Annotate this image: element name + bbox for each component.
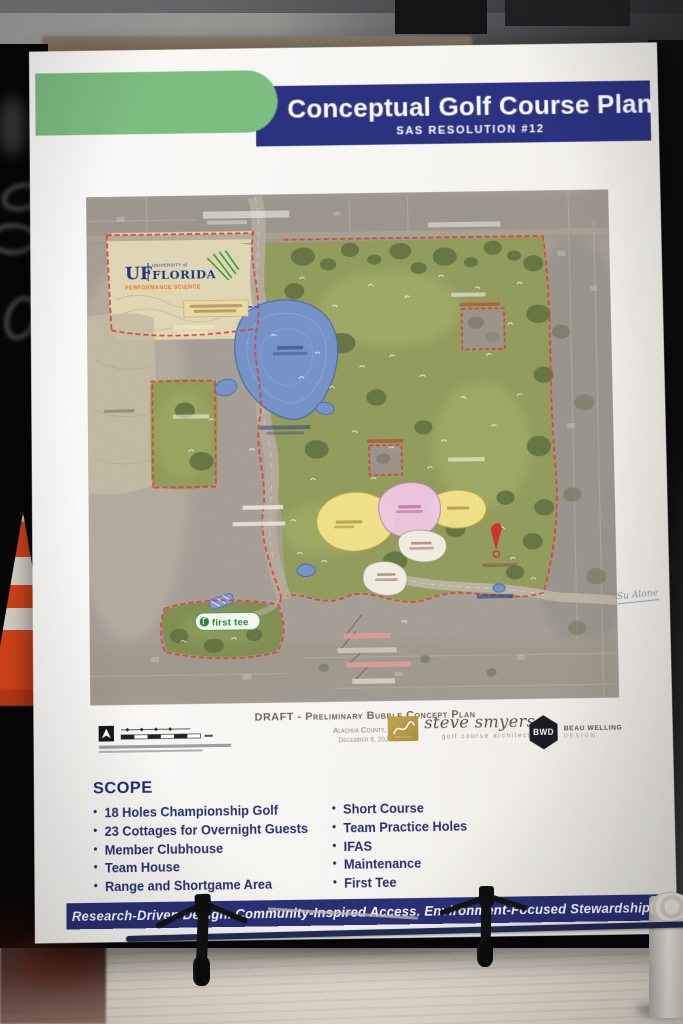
illegible-map-label (194, 309, 236, 313)
smyers-emblem-icon (388, 716, 419, 741)
blurred-highlight (0, 96, 26, 156)
scope-list-left: 18 Holes Championship Golf 23 Cottages f… (93, 801, 335, 897)
first-tee-logo: first tee (195, 612, 260, 630)
handwritten-note: Su Alone (616, 588, 658, 605)
poster-subtitle: SAS RESOLUTION #12 (396, 123, 545, 137)
paper-roll (649, 896, 683, 1018)
poster-title: Conceptual Golf Course Plan (287, 88, 653, 125)
beau-welling-logo: BWD BEAU WELLING DESIGN (528, 714, 623, 750)
ceiling-dark-panel (505, 0, 630, 26)
floor-red-reflection (16, 938, 98, 986)
north-arrow-icon (99, 726, 114, 742)
header-title-band: Conceptual Golf Course Plan SAS RESOLUTI… (255, 80, 651, 146)
smyers-name: steve smyers (424, 713, 535, 731)
easel-foot (477, 940, 493, 967)
fine-print-line (99, 744, 231, 749)
aerial-map-graphic: UF UNIVERSITY of FLORIDA PERFORMANCE SCI… (86, 190, 619, 706)
steve-smyers-logo: steve smyers golf course architects (388, 713, 536, 741)
scale-bar (119, 724, 217, 742)
bwd-hexagon-icon: BWD (528, 715, 559, 750)
short-course-bubble (378, 482, 441, 538)
paper-roll-top (649, 892, 683, 922)
ceiling-dark-panel (395, 0, 487, 34)
first-tee-label: first tee (212, 617, 249, 629)
map-legend-block (99, 724, 252, 753)
bwd-name-line2: DESIGN (564, 732, 623, 739)
footer-tagline: Research-Driven Design. Community-Inspir… (72, 900, 654, 925)
scope-heading: SCOPE (93, 779, 153, 799)
bwd-name-line1: BEAU WELLING (564, 724, 623, 732)
scope-item: Range and Shortgame Area (94, 875, 335, 897)
easel-leg (196, 910, 209, 960)
scope-list-right: Short Course Team Practice Holes IFAS Ma… (332, 798, 558, 894)
site-plan-map: UF UNIVERSITY of FLORIDA PERFORMANCE SCI… (86, 190, 619, 706)
uf-florida-text: FLORIDA (152, 267, 217, 282)
uf-program-text: PERFORMANCE SCIENCE (125, 284, 201, 291)
easel-foot (193, 956, 210, 986)
poster-board: Conceptual Golf Course Plan SAS RESOLUTI… (29, 42, 677, 943)
header-green-shape (35, 70, 278, 136)
bwd-abbr: BWD (533, 727, 554, 737)
scope-item: First Tee (333, 872, 558, 894)
parcel-note-box (184, 300, 249, 317)
fine-print-line (99, 749, 203, 753)
